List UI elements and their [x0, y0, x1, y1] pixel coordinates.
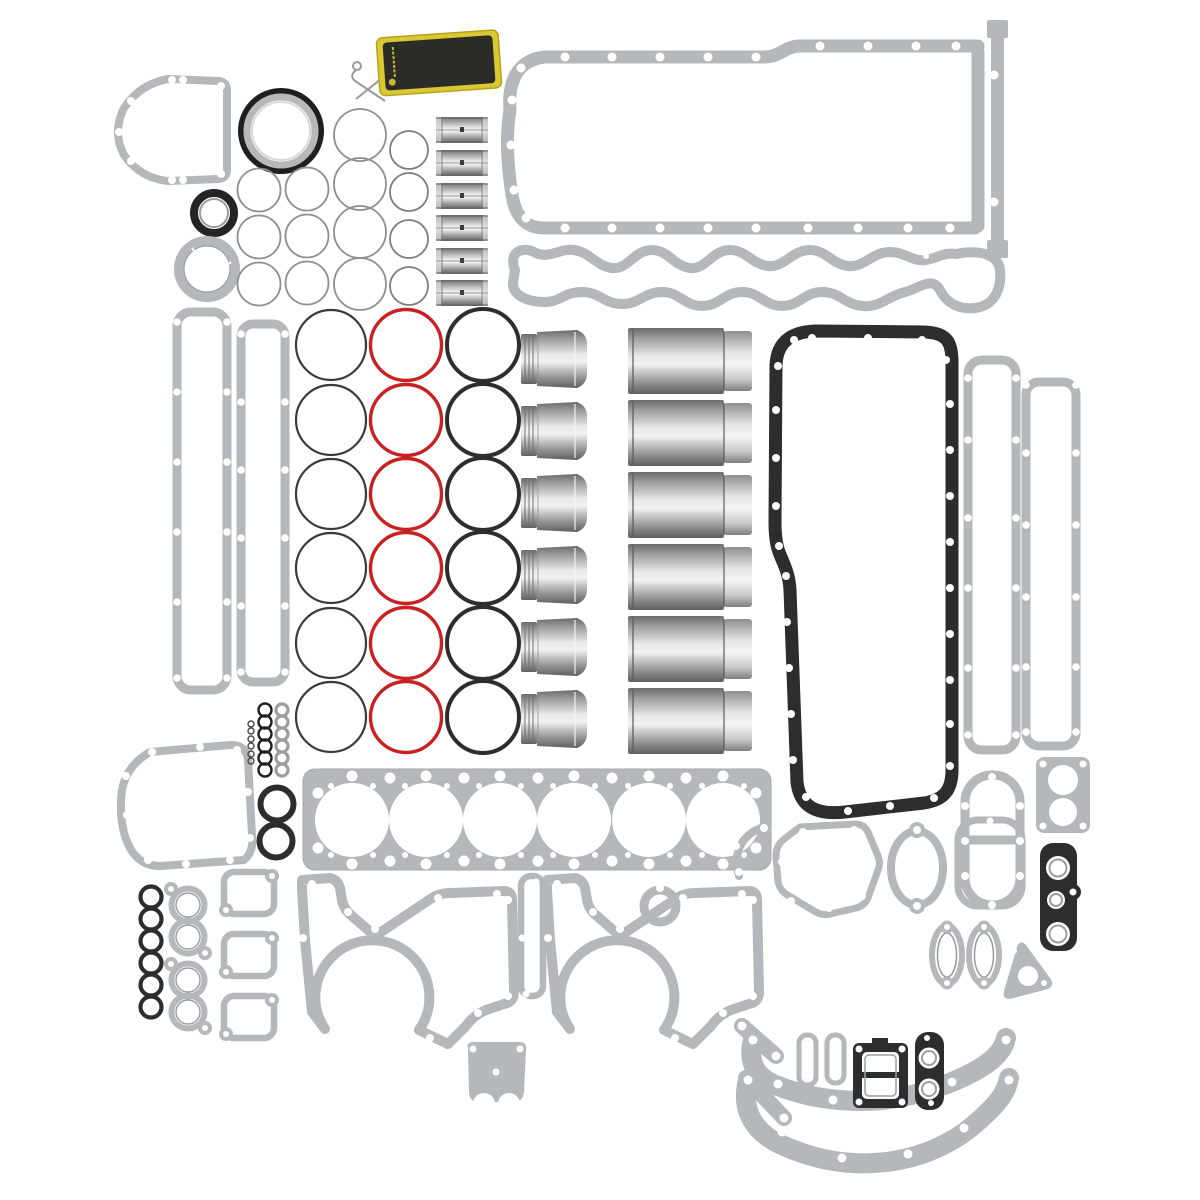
bolt-hole	[493, 890, 501, 898]
bolt-hole	[904, 1150, 913, 1159]
bolt-hole	[281, 466, 289, 474]
cylinder-bore	[315, 783, 389, 857]
coolant-hole	[328, 852, 334, 858]
heat-shield-gasket	[519, 876, 544, 998]
bolt-hole	[522, 214, 531, 223]
bolt-hole	[804, 224, 813, 233]
bolt-hole	[223, 388, 231, 396]
bolt-hole	[237, 330, 245, 338]
bolt-hole	[179, 76, 187, 84]
bolt-hole	[923, 253, 929, 259]
o-ring-tiny	[248, 743, 254, 749]
bolt-hole	[223, 318, 231, 326]
tab-gasket	[799, 1035, 816, 1085]
turbo-mount-gasket-black	[853, 1038, 908, 1108]
bolt-hole	[144, 856, 152, 864]
bolt-hole	[864, 334, 872, 342]
o-ring-black-medium	[141, 931, 162, 952]
bolt-hole	[749, 1036, 758, 1045]
rod-bearing	[436, 215, 488, 241]
head-bolt-hole	[718, 771, 729, 782]
head-bolt-hole	[681, 856, 692, 867]
head-bolt-hole	[533, 773, 544, 784]
bolt-hole	[1012, 731, 1020, 739]
bolt-hole	[912, 42, 921, 51]
bolt-hole	[946, 446, 954, 454]
compression-ring-black	[296, 459, 366, 529]
bolt-hole	[182, 860, 190, 868]
bolt-hole	[785, 664, 793, 672]
engine-overhaul-kit-image	[0, 0, 1200, 1200]
coolant-hole	[402, 852, 408, 858]
bolt-hole	[1016, 837, 1024, 845]
bolt-hole	[223, 528, 231, 536]
bolt-hole	[217, 82, 225, 90]
piston-ring-small-set	[238, 109, 429, 310]
head-bolt-hole	[569, 771, 580, 782]
bolt-hole	[772, 406, 780, 414]
valve-cover-gasket	[513, 248, 1000, 308]
piston-ring-small	[390, 131, 428, 169]
bolt-hole	[774, 362, 782, 370]
o-ring-black-medium	[141, 909, 162, 930]
head-bolt-hole	[347, 859, 358, 870]
bolt-hole	[281, 602, 289, 610]
tag-wire-hook	[353, 62, 361, 70]
bolt-hole	[752, 224, 761, 233]
bolt-hole	[281, 398, 289, 406]
coolant-hole	[476, 852, 482, 858]
tab-gasket	[827, 1035, 844, 1083]
bolt-hole	[1022, 449, 1030, 457]
bolt-hole	[281, 330, 289, 338]
piston	[521, 546, 587, 604]
bolt-hole	[173, 388, 181, 396]
bolt-hole	[858, 892, 866, 900]
piston-ring-small	[286, 168, 329, 211]
bolt-hole	[774, 1080, 783, 1089]
bolt-hole	[299, 934, 307, 942]
o-ring-black-medium	[141, 953, 162, 974]
head-bolt-hole	[495, 859, 506, 870]
bolt-hole	[1016, 872, 1024, 880]
bolt-hole	[829, 1096, 838, 1105]
bolt-hole	[946, 492, 954, 500]
piston-ring-small	[286, 262, 329, 305]
timing-cover-gasket-2	[547, 878, 759, 1044]
bolt-hole	[838, 1154, 847, 1163]
oil-pan-gasket-black	[772, 331, 954, 815]
bolt-hole	[561, 53, 570, 62]
o-ring-black-medium	[141, 887, 162, 908]
bolt-hole	[960, 1124, 969, 1133]
bolt-hole	[964, 436, 972, 444]
bolt-hole	[775, 542, 783, 550]
piston-ring-small	[390, 220, 428, 258]
front-housing-gasket	[121, 745, 252, 866]
bolt-hole	[942, 356, 950, 364]
coolant-hole	[476, 783, 482, 789]
o-ring-black-medium	[141, 975, 162, 996]
bolt-hole	[474, 1009, 482, 1017]
bolt-hole	[719, 1009, 727, 1017]
bolt-hole	[752, 53, 761, 62]
bolt-hole	[704, 224, 713, 233]
bolt-hole	[946, 762, 954, 770]
bolt-hole	[1072, 381, 1080, 389]
cylinder-bore	[389, 783, 463, 857]
bolt-hole	[233, 746, 241, 754]
coolant-hole	[402, 783, 408, 789]
piston-ring-small	[334, 158, 386, 210]
bolt-hole	[344, 908, 352, 916]
bolt-hole	[656, 53, 665, 62]
cylinder-liner	[628, 544, 752, 610]
bolt-hole	[246, 834, 254, 842]
oil-cooler-stadium-gasket	[965, 775, 1020, 905]
side-cover-gaskets-right	[964, 360, 1080, 750]
piston-ring-small	[334, 206, 386, 258]
bolt-hole	[787, 897, 795, 905]
bolt-hole	[864, 42, 873, 51]
bolt-hole	[517, 64, 526, 73]
bolt-hole	[544, 934, 552, 942]
bolt-hole	[173, 674, 181, 682]
piston	[521, 402, 587, 460]
bolt-hole	[609, 249, 615, 255]
bolt-hole	[1022, 593, 1030, 601]
bolt-hole	[988, 901, 996, 909]
bolt-hole	[802, 793, 810, 801]
bolt-hole	[787, 710, 795, 718]
compression-ring-red	[371, 608, 442, 679]
bolt-hole	[308, 880, 316, 888]
coolant-hole	[444, 852, 450, 858]
bolt-hole	[368, 1112, 376, 1120]
head-bolt-hole	[644, 859, 655, 870]
bolt-hole	[196, 743, 204, 751]
bolt-hole	[148, 748, 156, 756]
head-bolt-hole	[751, 788, 762, 799]
two-circle-plate-gasket	[1036, 757, 1090, 833]
coolant-hole	[328, 783, 334, 789]
head-bolt-hole	[313, 843, 324, 854]
bolt-hole	[961, 872, 969, 880]
piston-ring-small	[334, 109, 386, 161]
oval-two-hole-gasket	[891, 822, 943, 914]
coolant-hole	[699, 783, 705, 789]
bolt-hole	[825, 904, 833, 912]
bolt-hole	[1072, 449, 1080, 457]
bolt-hole	[1022, 728, 1030, 736]
oil-drain-gasket-black	[915, 1032, 944, 1110]
piston-ring-grid	[296, 309, 519, 753]
bolt-hole	[168, 176, 176, 184]
rod-bearing	[436, 150, 488, 176]
bolt-hole	[799, 828, 807, 836]
bolt-hole	[608, 53, 617, 62]
bolt-hole	[613, 1112, 621, 1120]
cylinder-bore	[537, 783, 611, 857]
seal-donut-gray	[276, 764, 288, 776]
compression-ring-black	[296, 682, 366, 752]
bolt-hole	[173, 598, 181, 606]
piston	[521, 474, 587, 532]
bolt-hole	[223, 674, 231, 682]
compression-ring-black	[296, 385, 366, 455]
bolt-hole	[237, 668, 245, 676]
cylinder-liner	[628, 616, 752, 682]
bolt-hole	[886, 802, 894, 810]
head-bolt-hole	[495, 771, 506, 782]
head-bolt-hole	[421, 771, 432, 782]
bolt-hole	[589, 908, 597, 916]
bolt-hole	[990, 71, 999, 80]
bolt-hole	[671, 1034, 679, 1042]
coolant-hole	[625, 783, 631, 789]
bolt-hole	[508, 96, 517, 105]
bolt-hole	[749, 896, 757, 904]
bolt-hole	[510, 186, 519, 195]
coolant-hole	[550, 852, 556, 858]
piston-ring-small	[334, 258, 386, 310]
bolt-hole	[1012, 436, 1020, 444]
compression-ring-red	[371, 310, 442, 381]
oil-control-ring-black	[447, 309, 519, 381]
cylinder-liner	[628, 328, 752, 394]
bolt-hole	[964, 514, 972, 522]
bolt-hole	[744, 1076, 753, 1085]
bolt-hole	[1072, 593, 1080, 601]
coolant-hole	[741, 783, 747, 789]
bolt-hole	[952, 42, 961, 51]
bolt-hole	[964, 664, 972, 672]
bolt-hole	[930, 794, 938, 802]
piston	[521, 618, 587, 676]
coolant-hole	[625, 852, 631, 858]
bolt-hole	[961, 802, 969, 810]
rod-bearing	[436, 117, 488, 143]
oil-cooler-gasket-black	[1040, 843, 1081, 951]
bolt-hole	[226, 856, 234, 864]
oval-port-gasket	[969, 921, 999, 990]
rod-bearing	[436, 280, 488, 306]
bolt-hole	[765, 248, 771, 254]
bolt-hole	[122, 772, 130, 780]
bolt-hole	[778, 1128, 787, 1137]
bottom-middle-cluster	[299, 876, 789, 1123]
coolant-hole	[370, 783, 376, 789]
piston-ring-small	[238, 216, 281, 259]
intake-port-gasket	[219, 993, 279, 1041]
bolt-hole	[844, 807, 852, 815]
bolt-hole	[735, 868, 743, 876]
bolt-hole	[127, 157, 135, 165]
bolt-hole	[616, 925, 624, 933]
side-cover-gaskets-left	[173, 312, 289, 690]
bolt-hole	[371, 925, 379, 933]
bolt-hole	[1005, 1076, 1014, 1085]
head-bolt-hole	[681, 773, 692, 784]
piston-ring-small	[286, 215, 329, 258]
bolt-hole	[223, 458, 231, 466]
bolt-hole	[434, 894, 442, 902]
oil-control-ring-black	[447, 458, 519, 530]
bolt-hole	[504, 896, 512, 904]
triangle-gasket	[1004, 942, 1052, 999]
piston	[521, 330, 587, 388]
o-ring-black-medium	[141, 997, 162, 1018]
bolt-hole	[772, 502, 780, 510]
bolt-hole	[789, 756, 797, 764]
coolant-hole	[550, 783, 556, 789]
cylinder-bore	[612, 783, 686, 857]
o-ring-tiny	[248, 721, 254, 727]
bolt-hole	[679, 894, 687, 902]
bolt-hole	[168, 76, 176, 84]
bolt-hole	[1012, 514, 1020, 522]
seal-donut-gray	[276, 740, 288, 752]
cylinder-bore	[686, 783, 760, 857]
cylinder-liner	[628, 400, 752, 466]
bolt-hole	[948, 1078, 957, 1087]
bolt-hole	[783, 618, 791, 626]
bolt-hole	[760, 824, 768, 832]
coolant-hole	[518, 783, 524, 789]
bolt-hole	[223, 598, 231, 606]
bolt-hole	[244, 788, 252, 796]
intake-port-gasket	[219, 931, 279, 979]
bolt-hole	[1012, 664, 1020, 672]
bolt-hole	[561, 224, 570, 233]
bolt-hole	[778, 858, 786, 866]
bolt-hole	[1022, 663, 1030, 671]
oil-control-ring-black	[447, 384, 519, 456]
piston	[521, 690, 587, 748]
head-bolt-hole	[607, 856, 618, 867]
coolant-hole	[699, 852, 705, 858]
bolt-hole	[732, 842, 740, 850]
bolt-hole	[946, 584, 954, 592]
head-bolt-hole	[459, 856, 470, 867]
exhaust-port-gasket-double	[164, 957, 212, 1035]
compression-ring-red	[371, 459, 442, 530]
flywheel-housing-gasket	[115, 76, 227, 184]
cylinder-liner	[628, 472, 752, 538]
rod-bearing	[436, 183, 488, 209]
bolt-hole	[749, 992, 757, 1000]
bolt-hole	[1022, 381, 1030, 389]
exhaust-port-gasket-double	[164, 882, 212, 960]
coolant-hole	[667, 852, 673, 858]
oval-port-gasket	[932, 921, 962, 990]
rod-bearing-set	[436, 117, 488, 306]
oil-control-ring-black	[447, 681, 519, 753]
pedestal-gasket	[468, 1042, 527, 1115]
o-ring-black-large	[260, 825, 293, 858]
bolt-hole	[816, 42, 825, 51]
oil-pan-rail-gasket	[507, 20, 1009, 258]
bolt-hole	[179, 176, 187, 184]
coolant-hole	[518, 852, 524, 858]
bolt-hole	[946, 538, 954, 546]
bolt-hole	[237, 466, 245, 474]
bolt-hole	[1022, 521, 1030, 529]
head-bolt-hole	[569, 859, 580, 870]
bolt-hole	[123, 811, 131, 819]
bolt-hole	[127, 97, 135, 105]
bolt-hole	[1072, 728, 1080, 736]
bolt-hole	[772, 454, 780, 462]
coolant-hole	[667, 783, 673, 789]
head-bolt-hole	[644, 771, 655, 782]
bolt-hole	[946, 720, 954, 728]
bolt-hole	[865, 856, 873, 864]
head-bolt-hole	[751, 843, 762, 854]
bottom-right-cluster	[732, 757, 1090, 1163]
bolt-hole	[504, 992, 512, 1000]
service-tag	[352, 30, 502, 101]
bolt-hole	[426, 1034, 434, 1042]
rod-bearing	[436, 248, 488, 274]
bolt-hole	[704, 53, 713, 62]
head-bolt-hole	[385, 773, 396, 784]
bolt-hole	[217, 170, 225, 178]
wear-sleeve-ring	[179, 241, 235, 297]
bolt-hole	[1016, 802, 1024, 810]
bolt-hole	[608, 224, 617, 233]
seal-donut-gray	[276, 704, 288, 716]
o-ring-black-large	[261, 788, 294, 821]
piston-ring-small	[390, 267, 428, 305]
bolt-hole	[790, 336, 798, 344]
compression-ring-red	[371, 385, 442, 456]
bolt-hole	[237, 534, 245, 542]
bolt-hole	[173, 318, 181, 326]
bolt-hole	[559, 1042, 567, 1050]
bolt-hole	[656, 224, 665, 233]
cylinder-head-gasket	[303, 769, 771, 870]
coolant-hole	[370, 852, 376, 858]
bolt-hole	[918, 336, 926, 344]
bolt-hole	[964, 731, 972, 739]
head-bolt-hole	[313, 788, 324, 799]
coolant-hole	[592, 783, 598, 789]
coolant-hole	[444, 783, 450, 789]
bolt-hole	[237, 398, 245, 406]
bolt-hole	[173, 528, 181, 536]
bolt-hole	[1012, 374, 1020, 382]
bolt-hole	[553, 880, 561, 888]
seal-donut-gray	[276, 752, 288, 764]
head-bolt-hole	[421, 859, 432, 870]
bolt-hole	[854, 224, 863, 233]
bolt-hole	[173, 458, 181, 466]
piston-ring-small	[238, 263, 281, 306]
bolt-hole	[656, 884, 664, 892]
o-ring-tiny	[248, 728, 254, 734]
parts-layout	[0, 0, 1200, 1200]
bolt-hole	[237, 602, 245, 610]
cylinder-liner-column	[628, 328, 752, 754]
compression-ring-black	[296, 310, 366, 380]
seal-donut-gray	[276, 716, 288, 728]
oil-control-ring-black	[447, 607, 519, 679]
bolt-hole	[946, 224, 955, 233]
seal-donut-gray	[276, 728, 288, 740]
bolt-hole	[964, 374, 972, 382]
piston-ring-small	[390, 173, 428, 211]
